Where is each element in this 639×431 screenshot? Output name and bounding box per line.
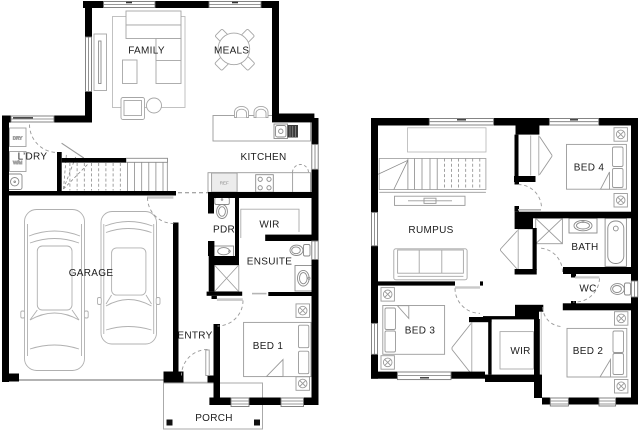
svg-text:KITCHEN: KITCHEN xyxy=(241,152,287,163)
svg-text:MEALS: MEALS xyxy=(214,46,249,57)
svg-text:L’DRY: L’DRY xyxy=(18,152,48,163)
svg-text:BED 3: BED 3 xyxy=(405,326,436,337)
svg-text:BED 2: BED 2 xyxy=(573,346,604,357)
svg-text:PORCH: PORCH xyxy=(195,413,233,424)
svg-text:BATH: BATH xyxy=(571,242,598,253)
svg-text:PDR: PDR xyxy=(213,225,235,236)
svg-text:RUMPUS: RUMPUS xyxy=(408,225,453,236)
svg-text:GARAGE: GARAGE xyxy=(69,268,114,279)
svg-text:REF: REF xyxy=(220,180,229,185)
svg-text:DRY: DRY xyxy=(13,136,22,141)
svg-text:WIR: WIR xyxy=(259,220,279,231)
svg-text:ENSUITE: ENSUITE xyxy=(247,257,292,268)
svg-text:ENTRY: ENTRY xyxy=(177,331,212,342)
svg-text:BED 4: BED 4 xyxy=(574,163,605,174)
svg-text:BED 1: BED 1 xyxy=(253,341,284,352)
svg-text:FAMILY: FAMILY xyxy=(128,46,165,57)
svg-text:WIR: WIR xyxy=(510,346,530,357)
